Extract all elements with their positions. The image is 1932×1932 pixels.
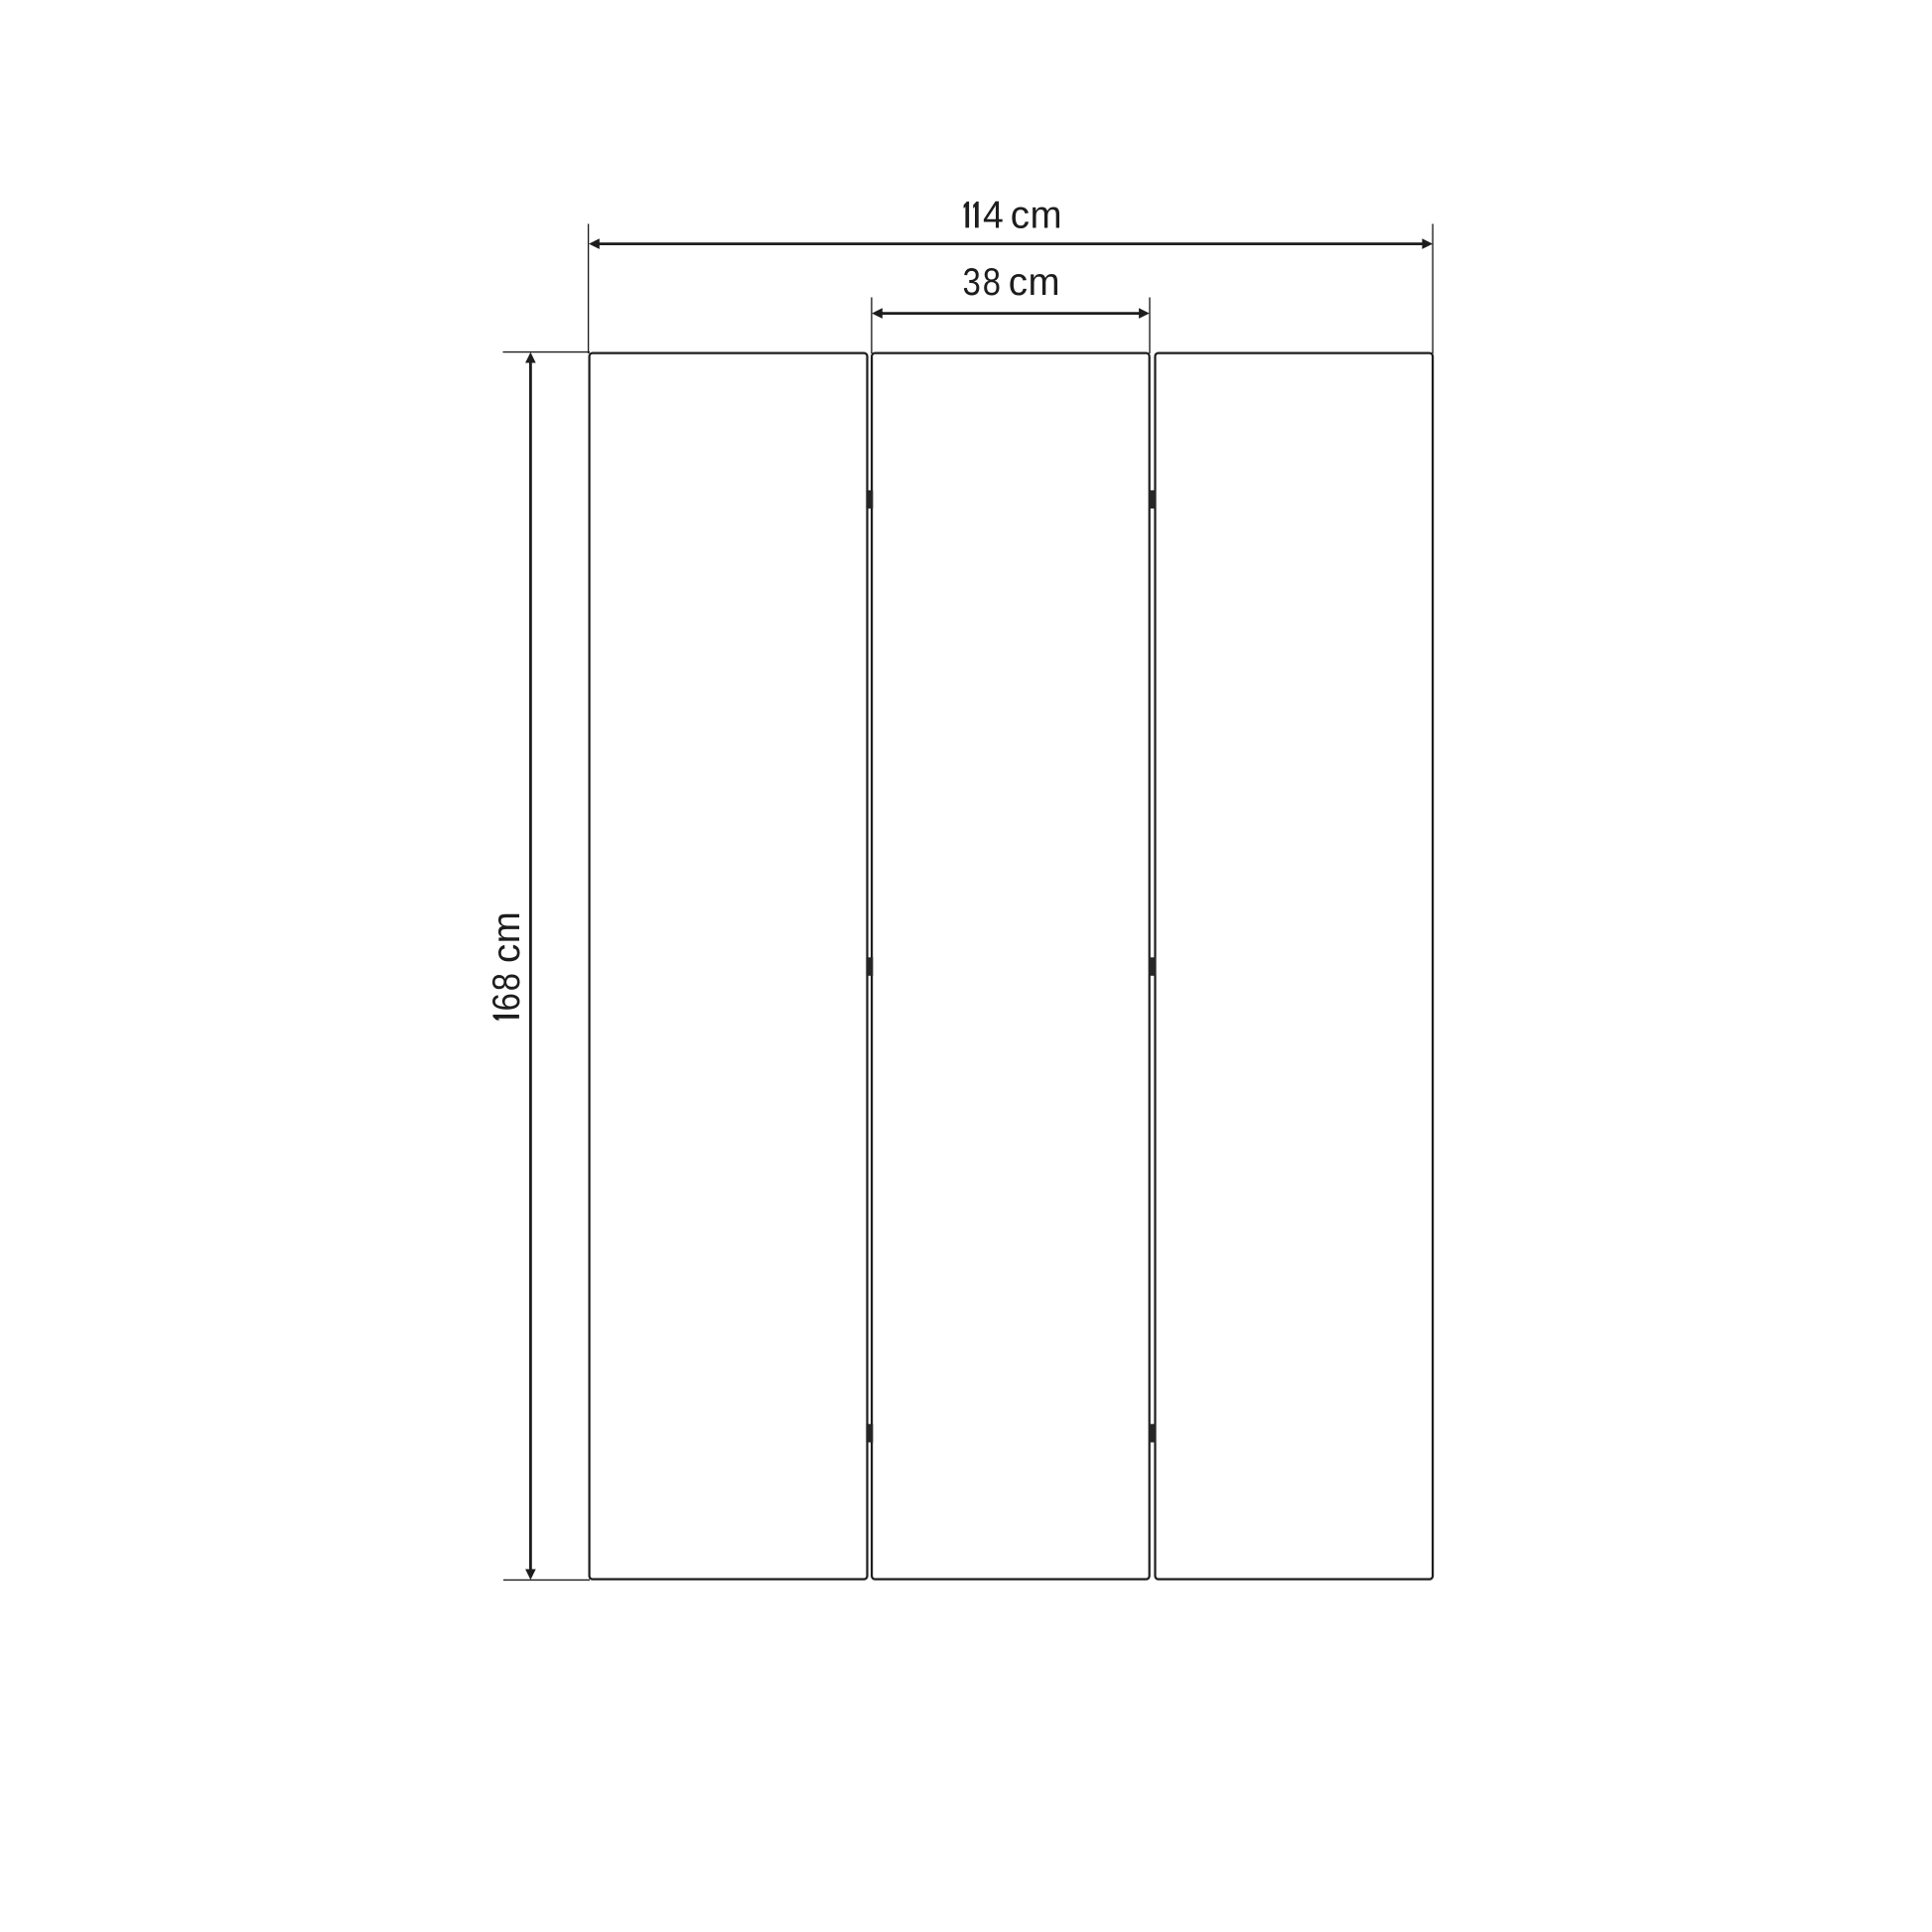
svg-text:38: 38 [963,260,1003,303]
svg-text:8: 8 [484,973,527,991]
svg-text:cm: cm [485,911,528,963]
svg-text:cm: cm [1011,194,1062,236]
svg-text:6: 6 [484,993,527,1011]
svg-text:4: 4 [983,195,1004,237]
svg-text:cm: cm [1009,261,1060,304]
